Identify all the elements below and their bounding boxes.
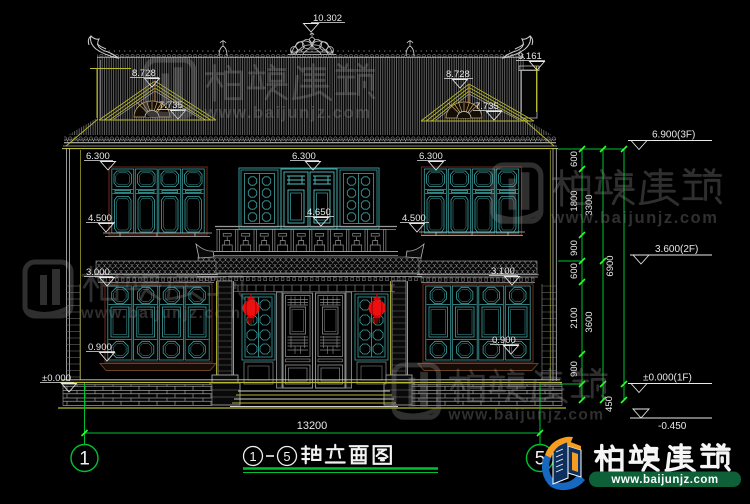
svg-text:±0.000(1F): ±0.000(1F)	[643, 373, 692, 384]
svg-text:1: 1	[79, 449, 90, 470]
svg-text:www.baijunjz.com: www.baijunjz.com	[447, 406, 604, 423]
svg-text:6900: 6900	[605, 255, 616, 276]
svg-text:13200: 13200	[297, 420, 328, 432]
svg-text:900: 900	[569, 240, 580, 256]
svg-text:6.900(3F): 6.900(3F)	[652, 130, 695, 141]
svg-text:2100: 2100	[569, 307, 580, 328]
svg-text:3.600(2F): 3.600(2F)	[655, 244, 698, 255]
svg-text:www.baijunjz.com: www.baijunjz.com	[550, 208, 718, 227]
svg-text:600: 600	[569, 263, 580, 279]
svg-text:www.baijunjz.com: www.baijunjz.com	[203, 103, 371, 122]
svg-text:-0.450: -0.450	[658, 421, 687, 432]
svg-text:www.baijunjz.com: www.baijunjz.com	[610, 474, 718, 486]
svg-text:www.baijunjz.com: www.baijunjz.com	[80, 305, 242, 322]
svg-text:1: 1	[249, 449, 256, 464]
svg-text:3600: 3600	[584, 311, 595, 332]
svg-text:5: 5	[283, 449, 290, 464]
svg-text:600: 600	[569, 151, 580, 167]
